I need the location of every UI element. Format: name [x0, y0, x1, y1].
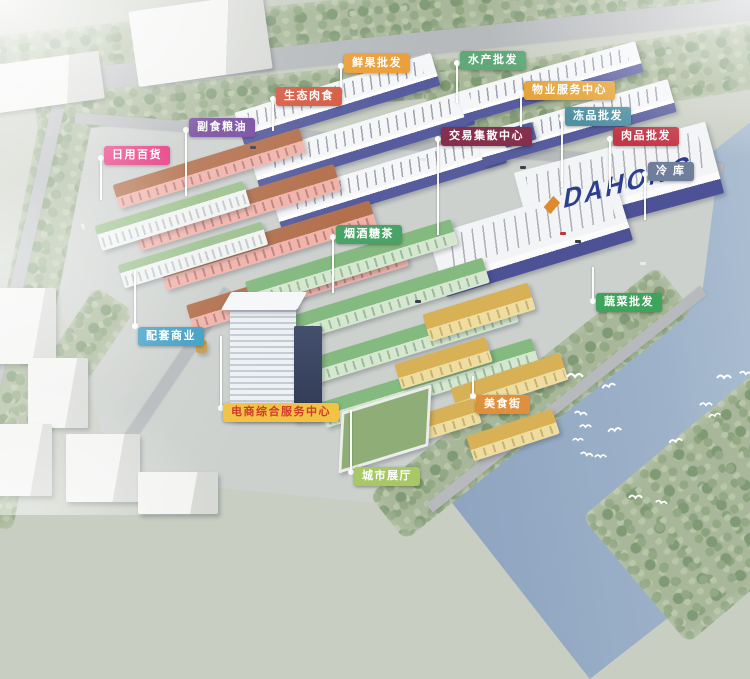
car: [560, 232, 566, 235]
existing-building: [138, 472, 218, 514]
aerial-masterplan-rendering: { "scene": { "type": "aerial-rendering-o…: [0, 0, 750, 515]
label-pin: [272, 99, 274, 131]
car: [420, 158, 426, 161]
label-pin: [561, 119, 563, 187]
zone-label-supporting-commerce: 配套商业: [138, 327, 204, 346]
car: [415, 300, 421, 303]
car: [520, 166, 526, 169]
label-pin: [220, 336, 222, 408]
label-pin: [437, 139, 439, 235]
zone-label-food-street: 美食街: [476, 395, 530, 414]
existing-building: [0, 288, 56, 364]
zone-label-ecommerce-center: 电商综合服务中心: [223, 403, 339, 422]
zone-label-eco-meat: 生态肉食: [276, 87, 342, 106]
zone-label-property-service: 物业服务中心: [524, 81, 615, 100]
label-pin: [134, 270, 136, 326]
label-pin: [350, 410, 352, 472]
label-pin: [644, 174, 646, 220]
existing-building: [128, 0, 272, 87]
car: [640, 262, 646, 265]
zone-label-tobacco-liquor-tea: 烟酒糖茶: [336, 225, 402, 244]
zone-label-trading-center: 交易集散中心: [441, 127, 532, 146]
bird-icon: [699, 400, 713, 407]
zone-label-fresh-fruit: 鲜果批发: [344, 54, 410, 73]
label-pin: [472, 376, 474, 396]
zone-label-grain-oil: 副食粮油: [189, 118, 255, 137]
zone-label-meat-wholesale: 肉品批发: [613, 127, 679, 146]
zone-label-city-exhibition-hall: 城市展厅: [354, 467, 420, 486]
zone-label-cold-storage: 冷 库: [648, 162, 694, 181]
label-pin: [100, 158, 102, 200]
bird-icon: [594, 452, 607, 459]
ecommerce-tower: [230, 300, 296, 418]
label-pin: [609, 139, 611, 189]
label-pin: [332, 237, 334, 293]
ecommerce-tower-roof: [221, 292, 307, 310]
bird-icon: [579, 422, 592, 429]
car: [575, 240, 581, 243]
label-pin: [185, 130, 187, 196]
label-pin: [592, 267, 594, 301]
car: [250, 146, 256, 149]
bird-icon: [716, 372, 732, 380]
existing-building: [66, 434, 140, 502]
zone-label-vegetable-wholesale: 蔬菜批发: [596, 293, 662, 312]
existing-building: [0, 424, 52, 496]
zone-label-frozen-wholesale: 冻品批发: [565, 107, 631, 126]
bird-icon: [566, 370, 584, 379]
bird-icon: [628, 492, 643, 500]
existing-building: [28, 358, 88, 428]
label-pin: [456, 63, 458, 103]
bird-icon: [572, 436, 584, 442]
zone-label-aquatic-wholesale: 水产批发: [460, 51, 526, 70]
zone-label-daily-goods: 日用百货: [104, 146, 170, 165]
